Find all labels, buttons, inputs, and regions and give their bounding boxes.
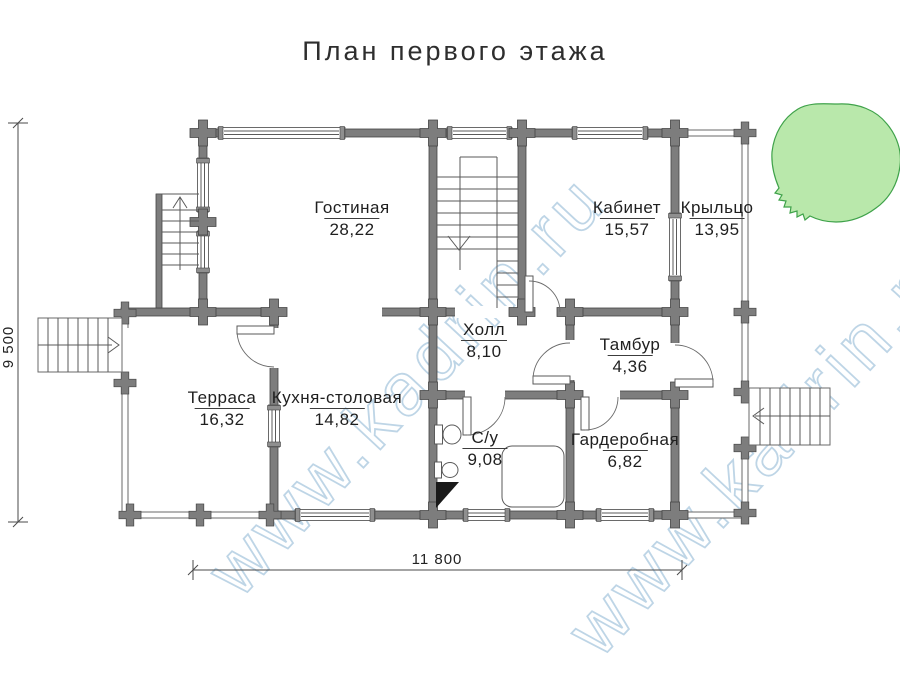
room-area: 9,08	[462, 448, 507, 470]
porch-steps	[749, 388, 830, 445]
side-staircase	[156, 194, 199, 308]
tree-icon	[772, 104, 900, 222]
room-area: 15,57	[599, 218, 654, 240]
dimension-left: 9 500	[0, 118, 28, 527]
room-name: Терраса	[186, 388, 259, 408]
room-name: Кухня-столовая	[270, 388, 404, 408]
room-label-garderobnaya: Гардеробная 6,82	[569, 430, 681, 473]
room-area: 4,36	[607, 355, 652, 377]
room-area: 8,10	[461, 340, 506, 362]
room-label-kuhnya: Кухня-столовая 14,82	[270, 388, 404, 431]
room-name: Кабинет	[591, 198, 663, 218]
window-bathroom-bottom	[463, 509, 510, 522]
room-area: 14,82	[309, 408, 364, 430]
floor-plan-drawing: www.kadrin.ru www.kadrin.ru	[0, 0, 900, 675]
window-living	[218, 127, 345, 140]
room-label-su: С/у 9,08	[462, 428, 507, 471]
window-kabinet-top	[572, 127, 648, 140]
sink-icon	[435, 462, 459, 478]
room-area: 28,22	[324, 218, 379, 240]
window-left-upper	[197, 158, 210, 212]
room-area: 16,32	[194, 408, 249, 430]
terrace-steps	[38, 318, 122, 372]
room-name: Крыльцо	[679, 198, 756, 218]
dimension-height-label: 9 500	[0, 326, 17, 369]
toilet-icon	[435, 425, 462, 444]
room-label-kryltso: Крыльцо 13,95	[679, 198, 756, 241]
floor-plan-page: www.kadrin.ru www.kadrin.ru	[0, 0, 900, 675]
room-label-gostinaya: Гостиная 28,22	[312, 198, 391, 241]
window-left-lower	[197, 231, 210, 273]
door-garderobnaya	[581, 397, 618, 430]
dimension-width-label: 11 800	[412, 551, 463, 568]
room-name: С/у	[462, 428, 507, 448]
room-label-terrasa: Терраса 16,32	[186, 388, 259, 431]
room-name: Холл	[461, 320, 507, 340]
room-name: Тамбур	[598, 335, 663, 355]
room-area: 13,95	[689, 218, 744, 240]
room-name: Гардеробная	[569, 430, 681, 450]
page-title: План первого этажа	[302, 36, 607, 67]
window-stairs	[447, 127, 512, 140]
window-kitchen-bottom	[295, 509, 375, 522]
watermark-text: www.kadrin.ru	[190, 157, 622, 611]
room-label-holl: Холл 8,10	[461, 320, 507, 363]
room-area: 6,82	[602, 450, 647, 472]
window-garderob-bottom	[596, 509, 654, 522]
room-name: Гостиная	[312, 198, 391, 218]
shower-icon	[502, 446, 564, 507]
room-label-kabinet: Кабинет 15,57	[591, 198, 663, 241]
room-label-tambur: Тамбур 4,36	[598, 335, 663, 378]
corner-marker-icon	[436, 482, 459, 508]
stair-down-arrow-icon	[448, 236, 470, 250]
